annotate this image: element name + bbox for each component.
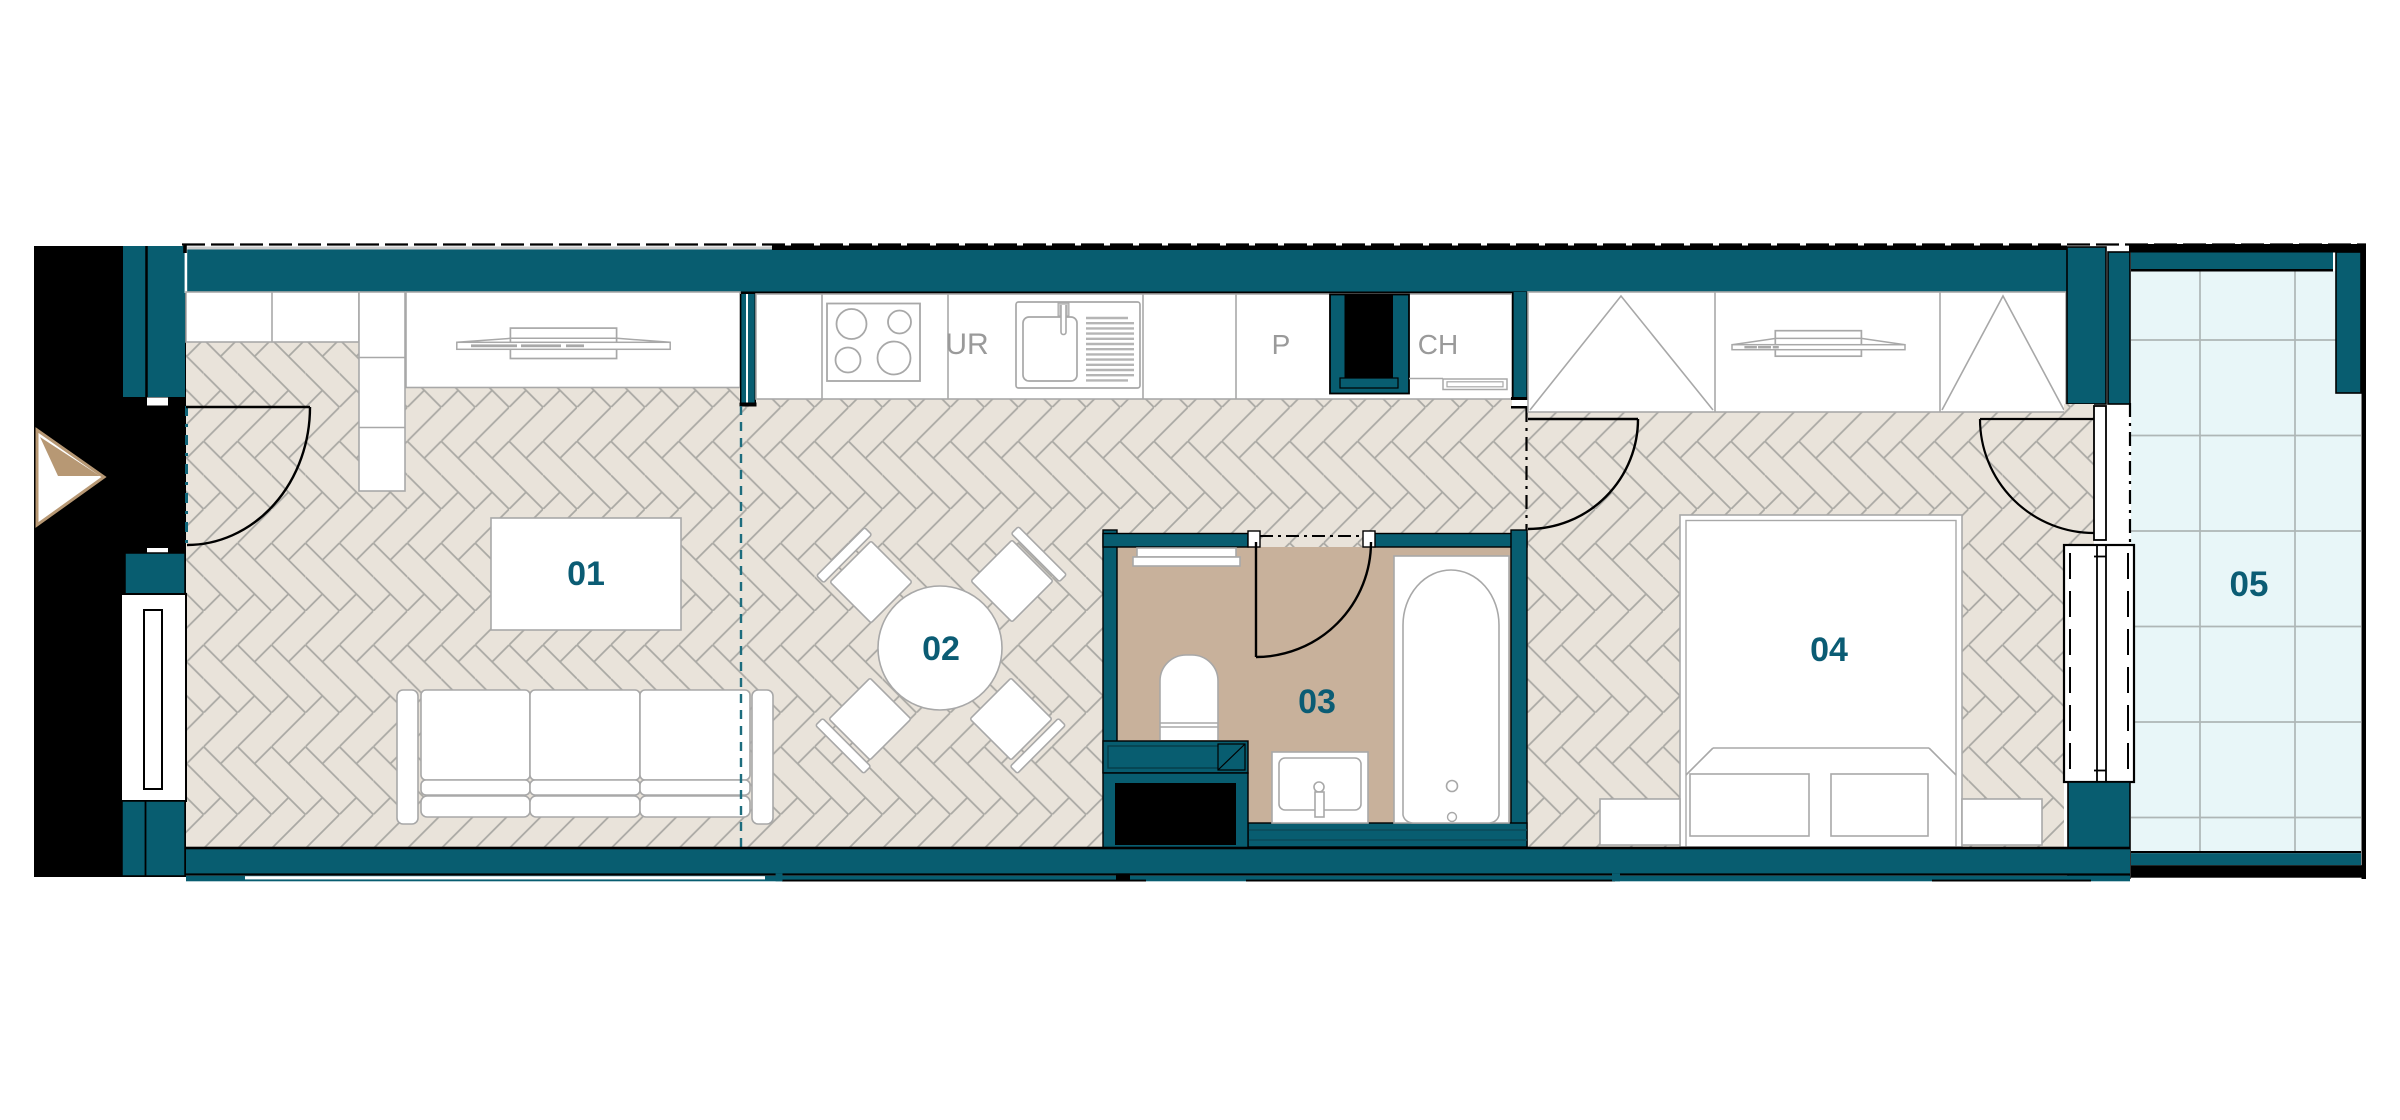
svg-text:UR: UR — [945, 328, 988, 361]
svg-text:P: P — [1272, 329, 1291, 360]
svg-text:02: 02 — [922, 630, 960, 668]
svg-text:04: 04 — [1810, 631, 1848, 669]
svg-text:03: 03 — [1298, 683, 1336, 721]
svg-text:CH: CH — [1418, 329, 1458, 360]
svg-text:05: 05 — [2230, 565, 2269, 604]
svg-text:01: 01 — [567, 555, 605, 593]
